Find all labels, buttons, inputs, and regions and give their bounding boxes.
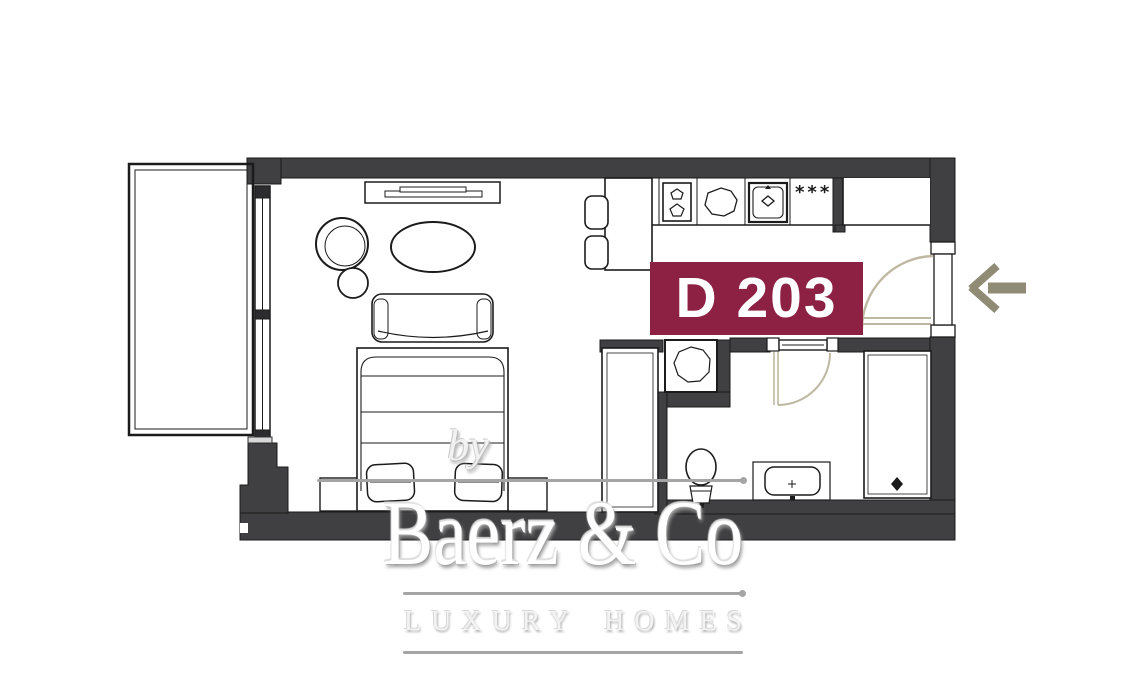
wall-notch	[240, 523, 248, 533]
stool	[338, 268, 368, 298]
floorplan-canvas: ***	[0, 0, 1146, 685]
watermark-brand: Baerz & Co	[383, 487, 743, 579]
watermark-tagline: LUXURY HOMES	[404, 606, 752, 638]
stove	[663, 183, 691, 221]
entry-closet	[843, 178, 930, 225]
watermark-by: by	[428, 420, 508, 471]
washbasin	[753, 462, 830, 500]
tv-unit	[365, 182, 500, 203]
watermark-rule-middle	[403, 592, 743, 595]
entry-door-swing	[862, 256, 933, 329]
unit-number-badge: D 203	[650, 262, 863, 335]
shower	[864, 351, 931, 498]
bathroom-door	[767, 338, 838, 405]
entry-arrow-icon	[971, 266, 1026, 310]
window-sliding-door	[248, 186, 272, 443]
watermark-rule-bottom	[403, 651, 743, 654]
dishwasher	[749, 183, 787, 222]
bathroom-door-swing	[774, 352, 830, 405]
washing-machine	[665, 340, 717, 392]
watermark-rule-middle-dot	[739, 590, 746, 597]
bar-counter	[585, 178, 652, 270]
entry-door	[862, 242, 955, 337]
balcony	[129, 164, 253, 435]
freezer-stars: ***	[795, 182, 832, 203]
sofa	[372, 294, 493, 342]
armchair	[316, 218, 368, 270]
coffee-table	[391, 222, 475, 272]
kitchen-sink	[705, 188, 737, 216]
